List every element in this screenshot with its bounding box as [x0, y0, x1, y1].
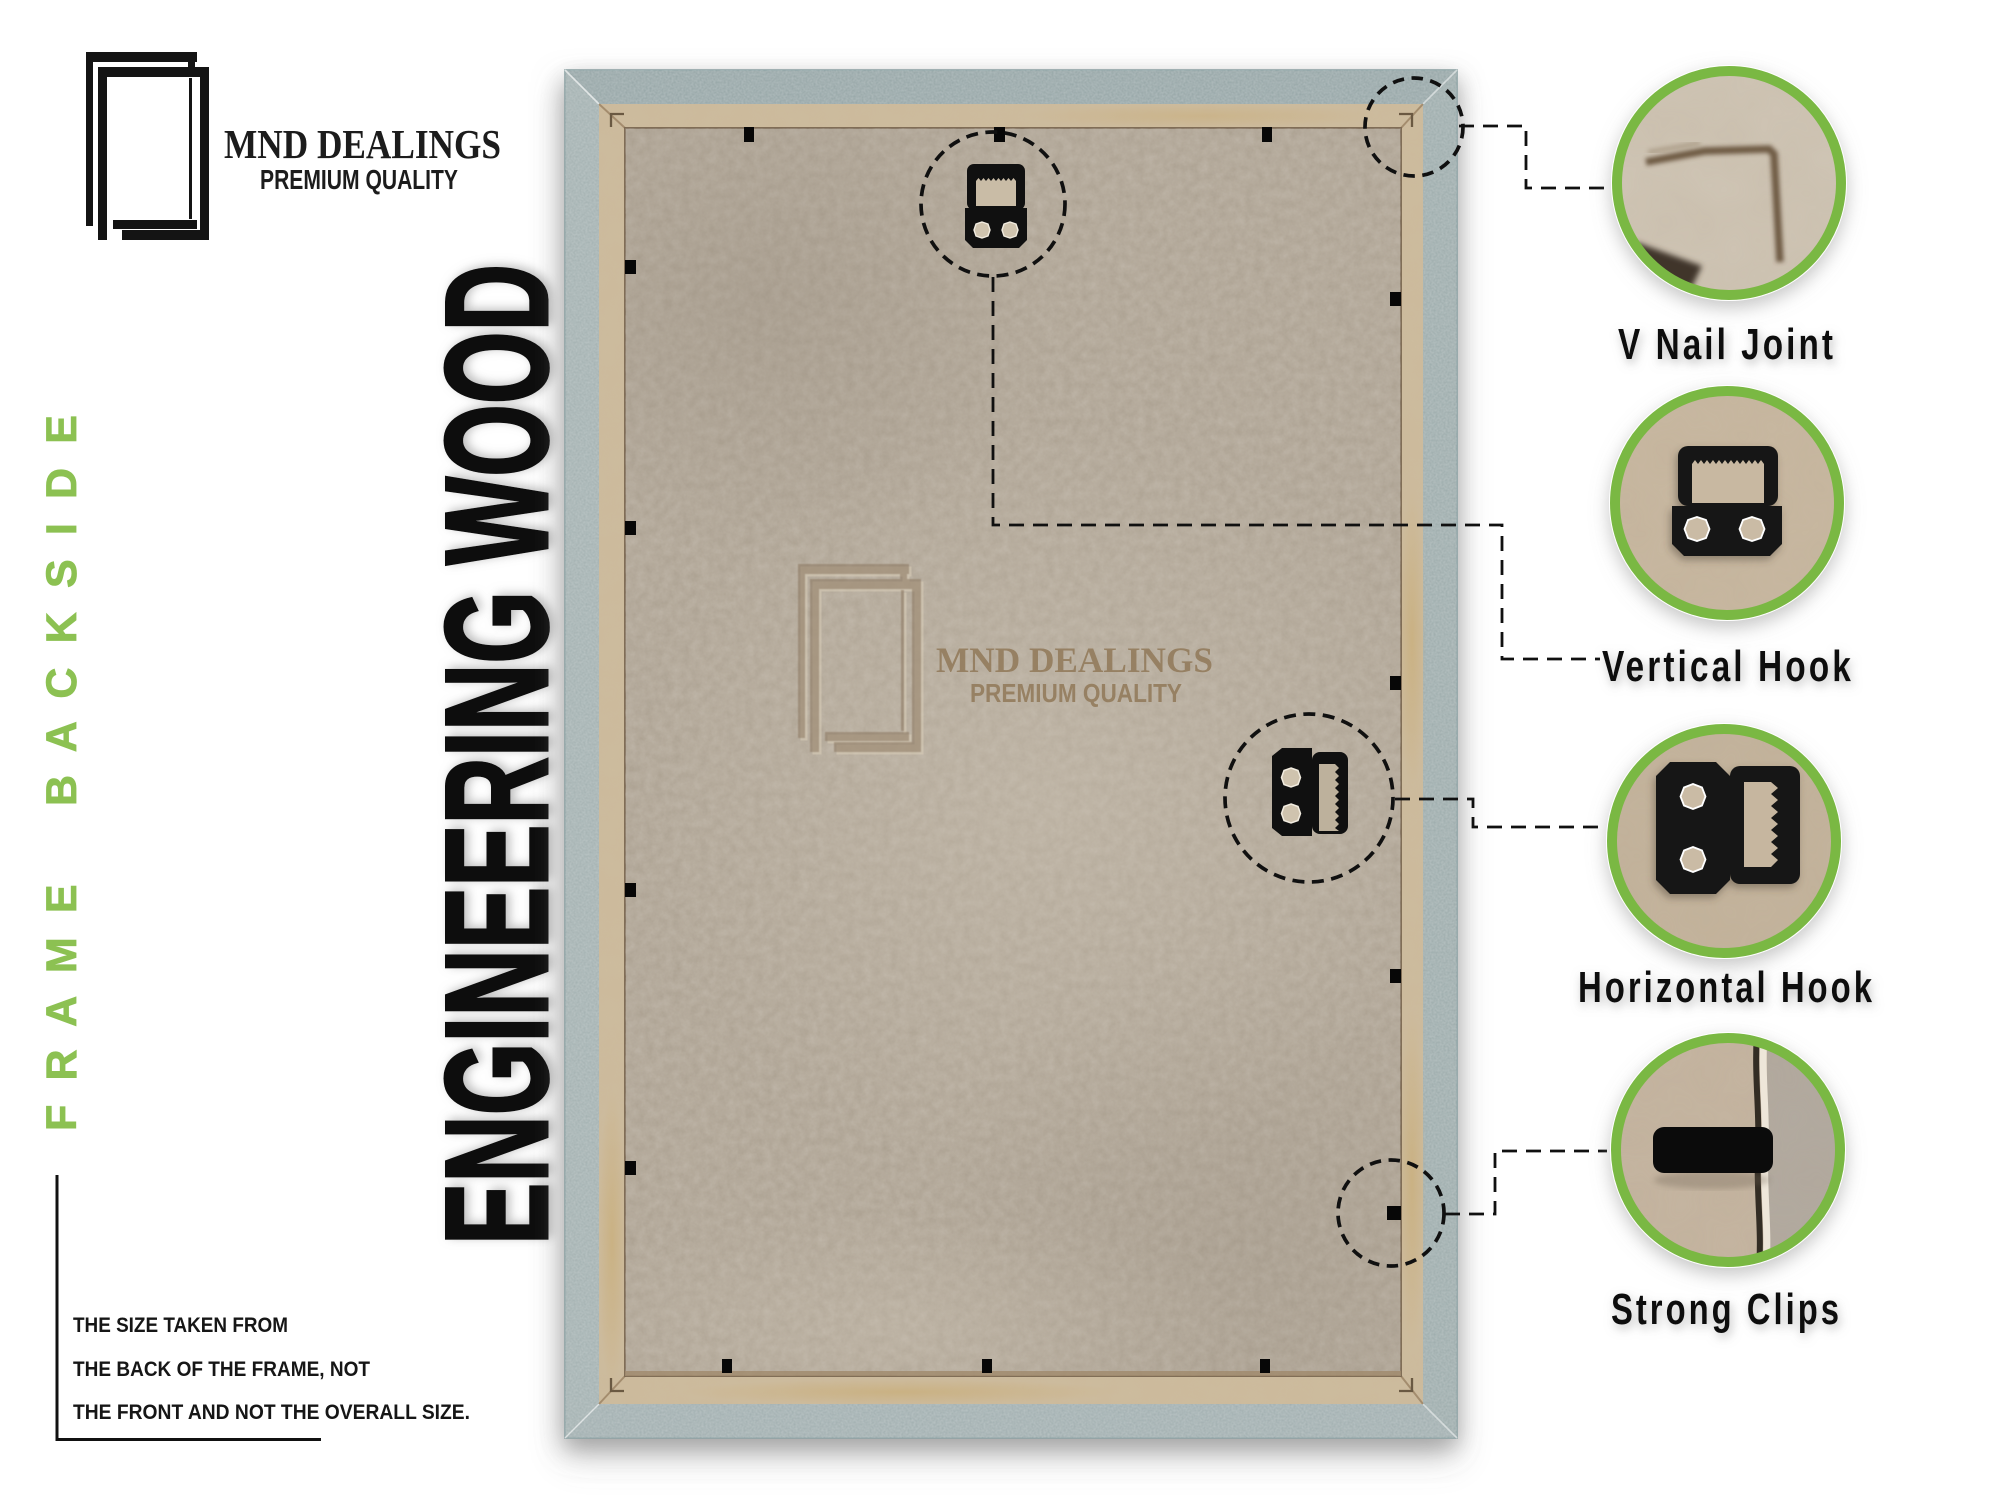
- svg-text:THE BACK OF THE FRAME, NOT: THE BACK OF THE FRAME, NOT: [73, 1358, 370, 1381]
- svg-text:THE FRONT AND NOT THE OVERALL: THE FRONT AND NOT THE OVERALL SIZE.: [73, 1401, 470, 1424]
- svg-text:MND DEALINGS: MND DEALINGS: [936, 640, 1213, 680]
- svg-text:PREMIUM QUALITY: PREMIUM QUALITY: [260, 164, 458, 195]
- svg-text:ENGINEERING WOOD: ENGINEERING WOOD: [415, 264, 578, 1245]
- svg-text:THE SIZE TAKEN FROM: THE SIZE TAKEN FROM: [73, 1314, 288, 1337]
- svg-text:V Nail Joint: V Nail Joint: [1618, 320, 1836, 369]
- svg-text:Horizontal Hook: Horizontal Hook: [1578, 963, 1875, 1012]
- svg-text:MND DEALINGS: MND DEALINGS: [224, 121, 501, 167]
- svg-text:PREMIUM QUALITY: PREMIUM QUALITY: [970, 678, 1182, 708]
- svg-text:Strong Clips: Strong Clips: [1611, 1285, 1842, 1334]
- svg-text:Vertical Hook: Vertical Hook: [1602, 642, 1854, 691]
